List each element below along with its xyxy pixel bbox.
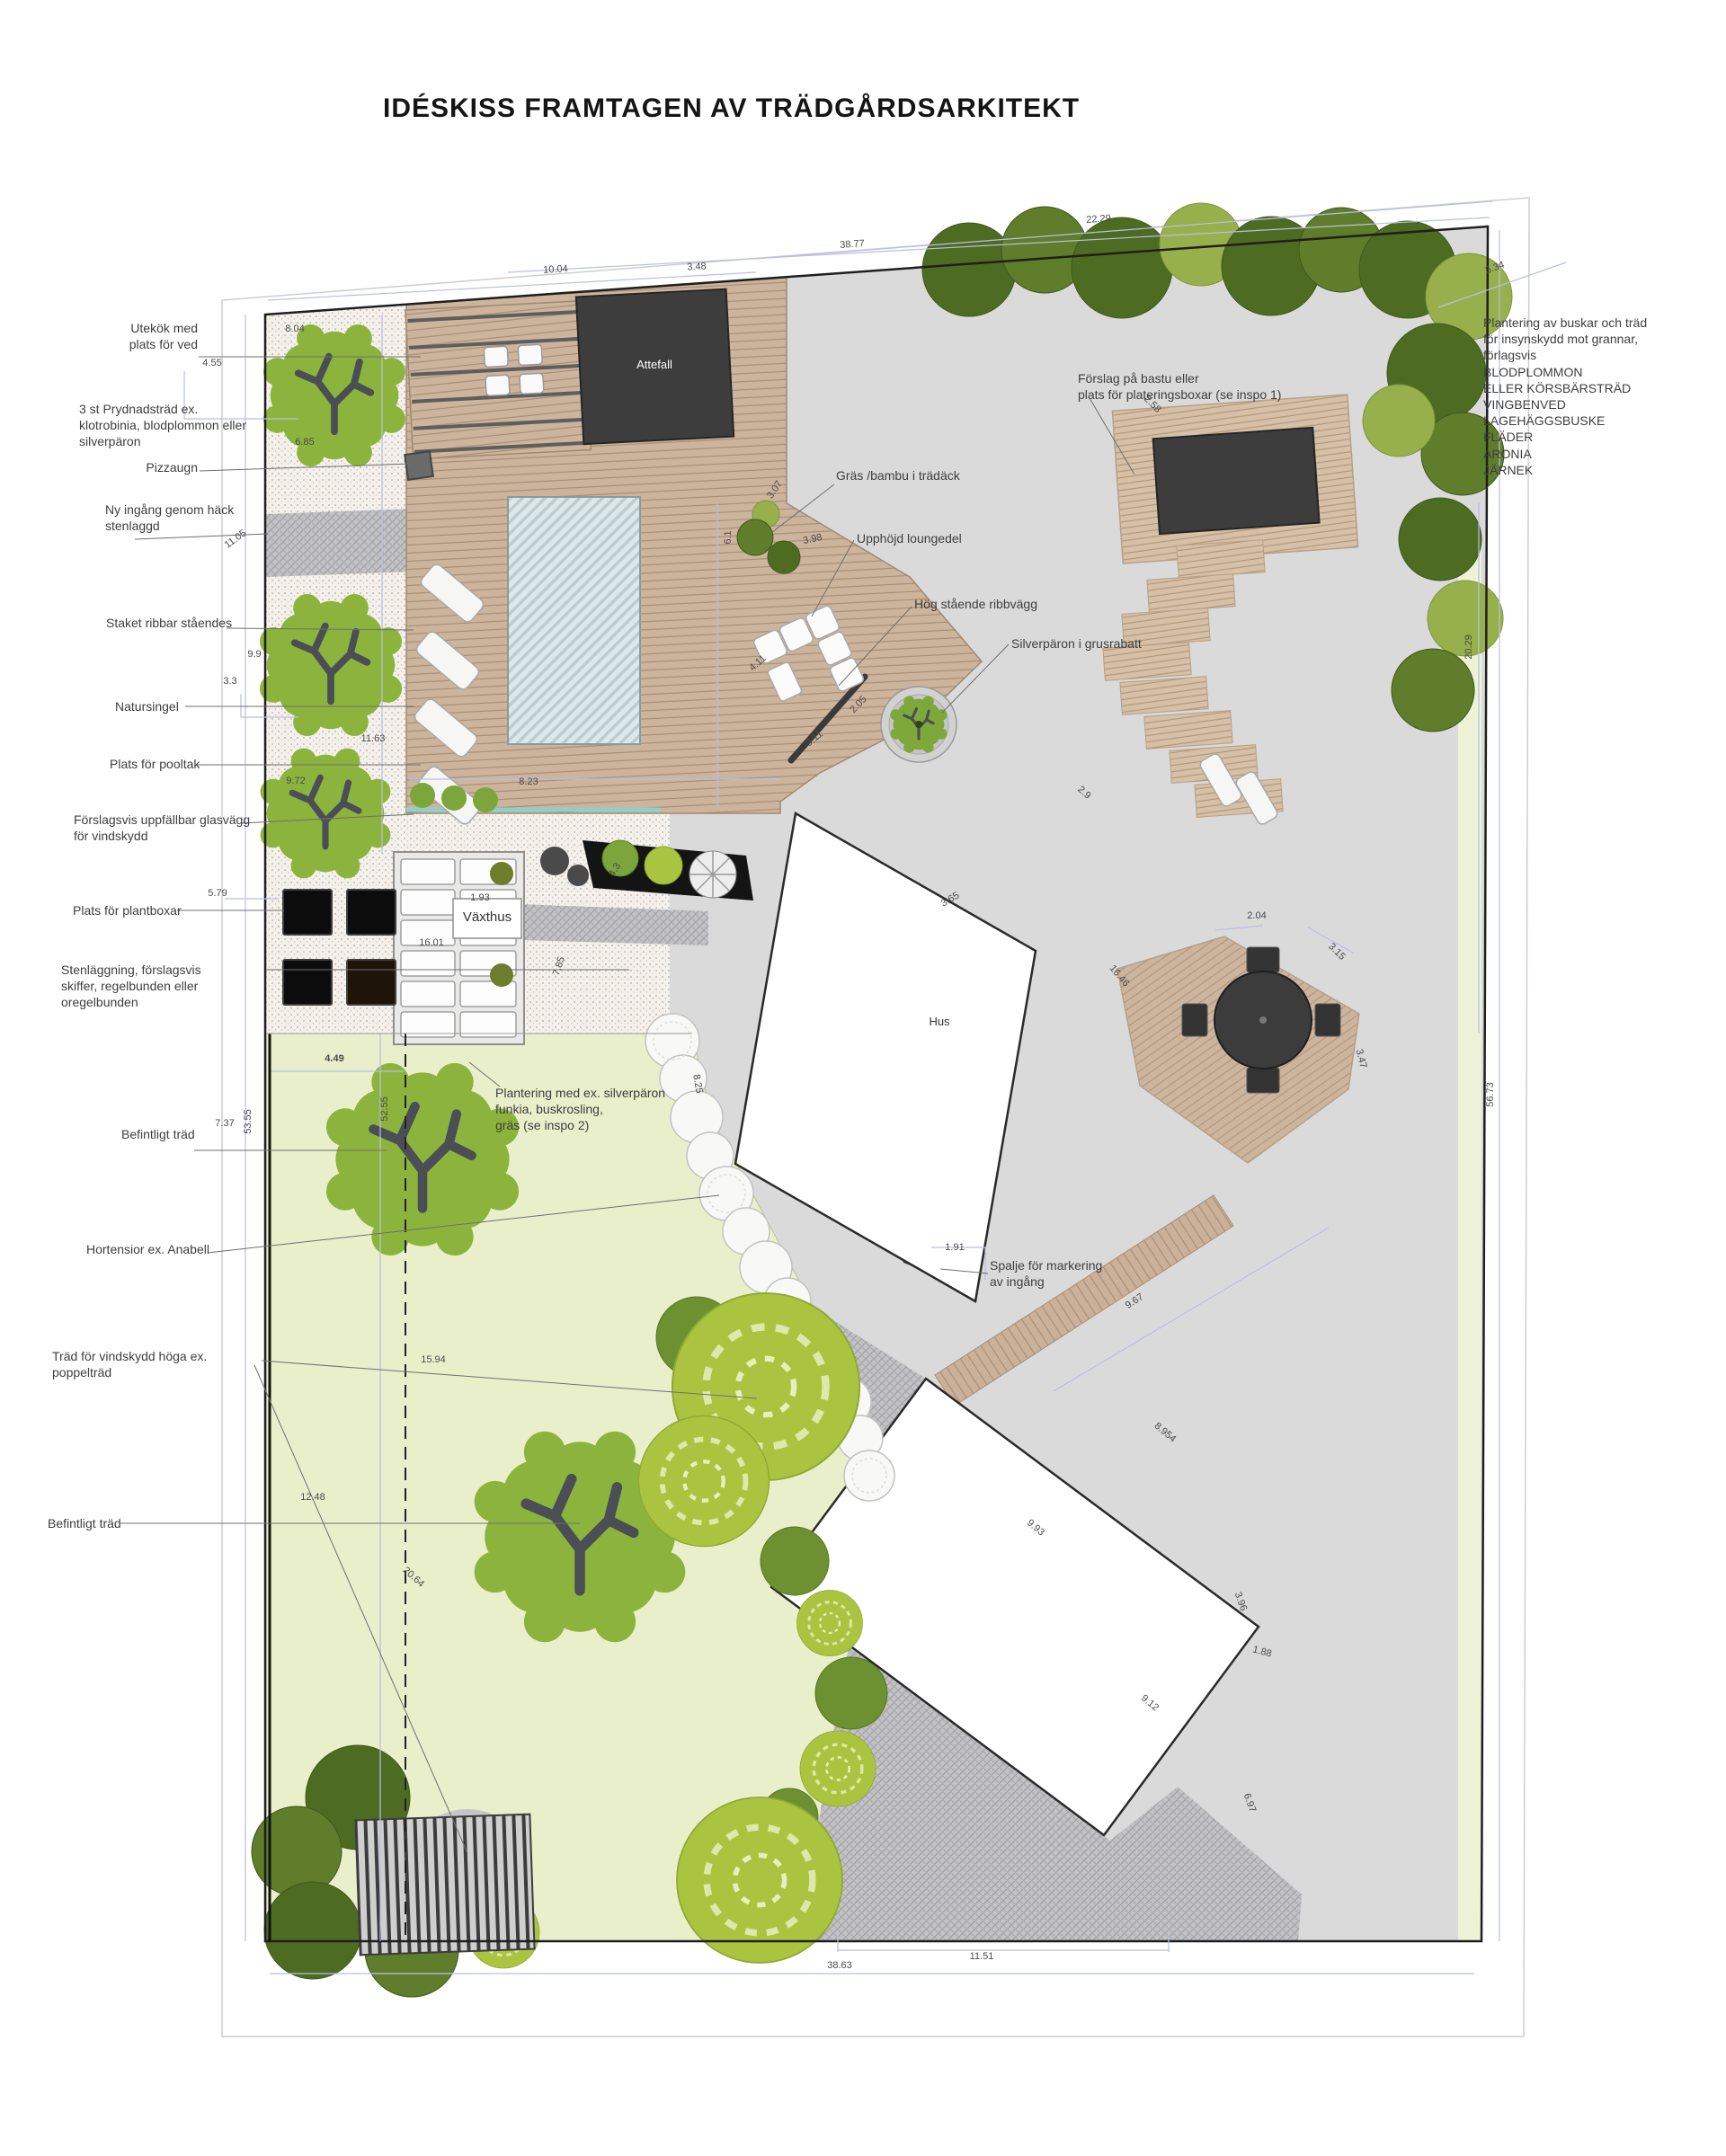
label-stenlaggning: Stenläggning, förslagsvis skiffer, regel…	[61, 962, 277, 1011]
dim: 38.77	[840, 238, 865, 251]
dim: 22.29	[1086, 213, 1111, 226]
label-loungedel: Upphöjd loungedel	[857, 530, 992, 546]
dim: 3.3	[223, 676, 236, 687]
label-pizzaugn: Pizzaugn	[106, 459, 198, 475]
label-utekok: Utekök med plats för ved	[79, 320, 198, 352]
hus-label: Hus	[917, 1015, 962, 1028]
dim: 8.04	[285, 324, 304, 334]
dim: 9.72	[286, 776, 305, 786]
dim: 3.48	[687, 261, 707, 272]
dim: 1.91	[945, 1242, 964, 1253]
label-poppeltrad: Träd för vindskydd höga ex. poppelträd	[52, 1348, 268, 1380]
slat-fence	[355, 1814, 534, 1956]
outdoor-kitchen	[405, 301, 591, 459]
attefall-label: Attefall	[614, 358, 695, 371]
label-glasvagg: Förslagsvis uppfällbar glasvägg för vind…	[74, 812, 262, 844]
dim: 6.85	[295, 437, 314, 448]
right-border-strip	[1458, 539, 1481, 1941]
label-befintligt-trad-1: Befintligt träd	[121, 1126, 220, 1142]
label-bastu: Förslag på bastu eller plats för plateri…	[1078, 370, 1294, 403]
label-ribbvagg: Hög stående ribbvägg	[914, 596, 1067, 612]
dim: 38.63	[827, 1960, 852, 1971]
vaxthus-label: Växthus	[453, 909, 521, 925]
label-hortensior: Hortensior ex. Anabell	[86, 1241, 230, 1257]
dim: 53.55	[243, 1109, 254, 1134]
dim: 15.94	[421, 1354, 446, 1365]
walkway-stone-paving	[520, 904, 708, 945]
label-prydnadstrad: 3 st Prydnadsträd ex. klotrobinia, blodp…	[79, 401, 259, 450]
garden-plan-drawing	[0, 0, 1726, 2156]
label-silverparon: Silverpäron i grusrabatt	[1011, 635, 1164, 652]
dim: 4.49	[325, 1053, 343, 1064]
dim: 8.23	[519, 776, 538, 787]
label-staket: Staket ribbar ståendes	[106, 615, 268, 631]
garden-plan-page: IDÉSKISS FRAMTAGEN AV TRÄDGÅRDSARKITEKT …	[0, 0, 1726, 2156]
pool	[508, 497, 640, 744]
shrub	[490, 963, 513, 987]
label-ny-ingang: Ny ingång genom häck stenlaggd	[105, 501, 258, 534]
dim: 5.79	[208, 888, 227, 899]
dim: 7.37	[215, 1118, 234, 1129]
dim: 6.1	[723, 530, 734, 544]
dim: 16.01	[419, 937, 444, 948]
dim: 52.55	[379, 1096, 390, 1122]
dim: 2.04	[1247, 910, 1266, 921]
dim: 56.73	[1485, 1082, 1496, 1107]
label-pooltak: Plats för pooltak	[110, 756, 236, 772]
sauna-deck	[1112, 395, 1357, 563]
dim: 11.51	[970, 1951, 994, 1962]
label-insynskydd: Plantering av buskar och träd för insyns…	[1483, 315, 1690, 478]
label-plantering: Plantering med ex. silverpäron funkia, b…	[495, 1085, 675, 1134]
shrub	[490, 862, 513, 885]
entry-stone-paving	[266, 509, 415, 577]
label-plantboxar: Plats för plantboxar	[73, 902, 208, 918]
dim: 20.29	[1464, 634, 1474, 660]
dim: 10.04	[543, 263, 568, 275]
label-spalje: Spalje för markering av ingång	[990, 1257, 1134, 1290]
dim: 4.55	[202, 358, 221, 368]
silverpear-gravel-bed	[881, 687, 956, 762]
dim: 9.9	[247, 649, 261, 660]
label-gras-bambu: Gräs /bambu i trädäck	[836, 467, 980, 484]
dim: 11.63	[361, 733, 386, 744]
dim: 12.48	[300, 1492, 325, 1503]
label-befintligt-trad-2: Befintligt träd	[48, 1515, 147, 1531]
dim: 1.93	[470, 892, 489, 903]
sauna-building	[1153, 428, 1320, 534]
pizza-oven	[405, 451, 433, 480]
label-natursingel: Natursingel	[115, 698, 223, 714]
page-title: IDÉSKISS FRAMTAGEN AV TRÄDGÅRDSARKITEKT	[383, 93, 1012, 124]
